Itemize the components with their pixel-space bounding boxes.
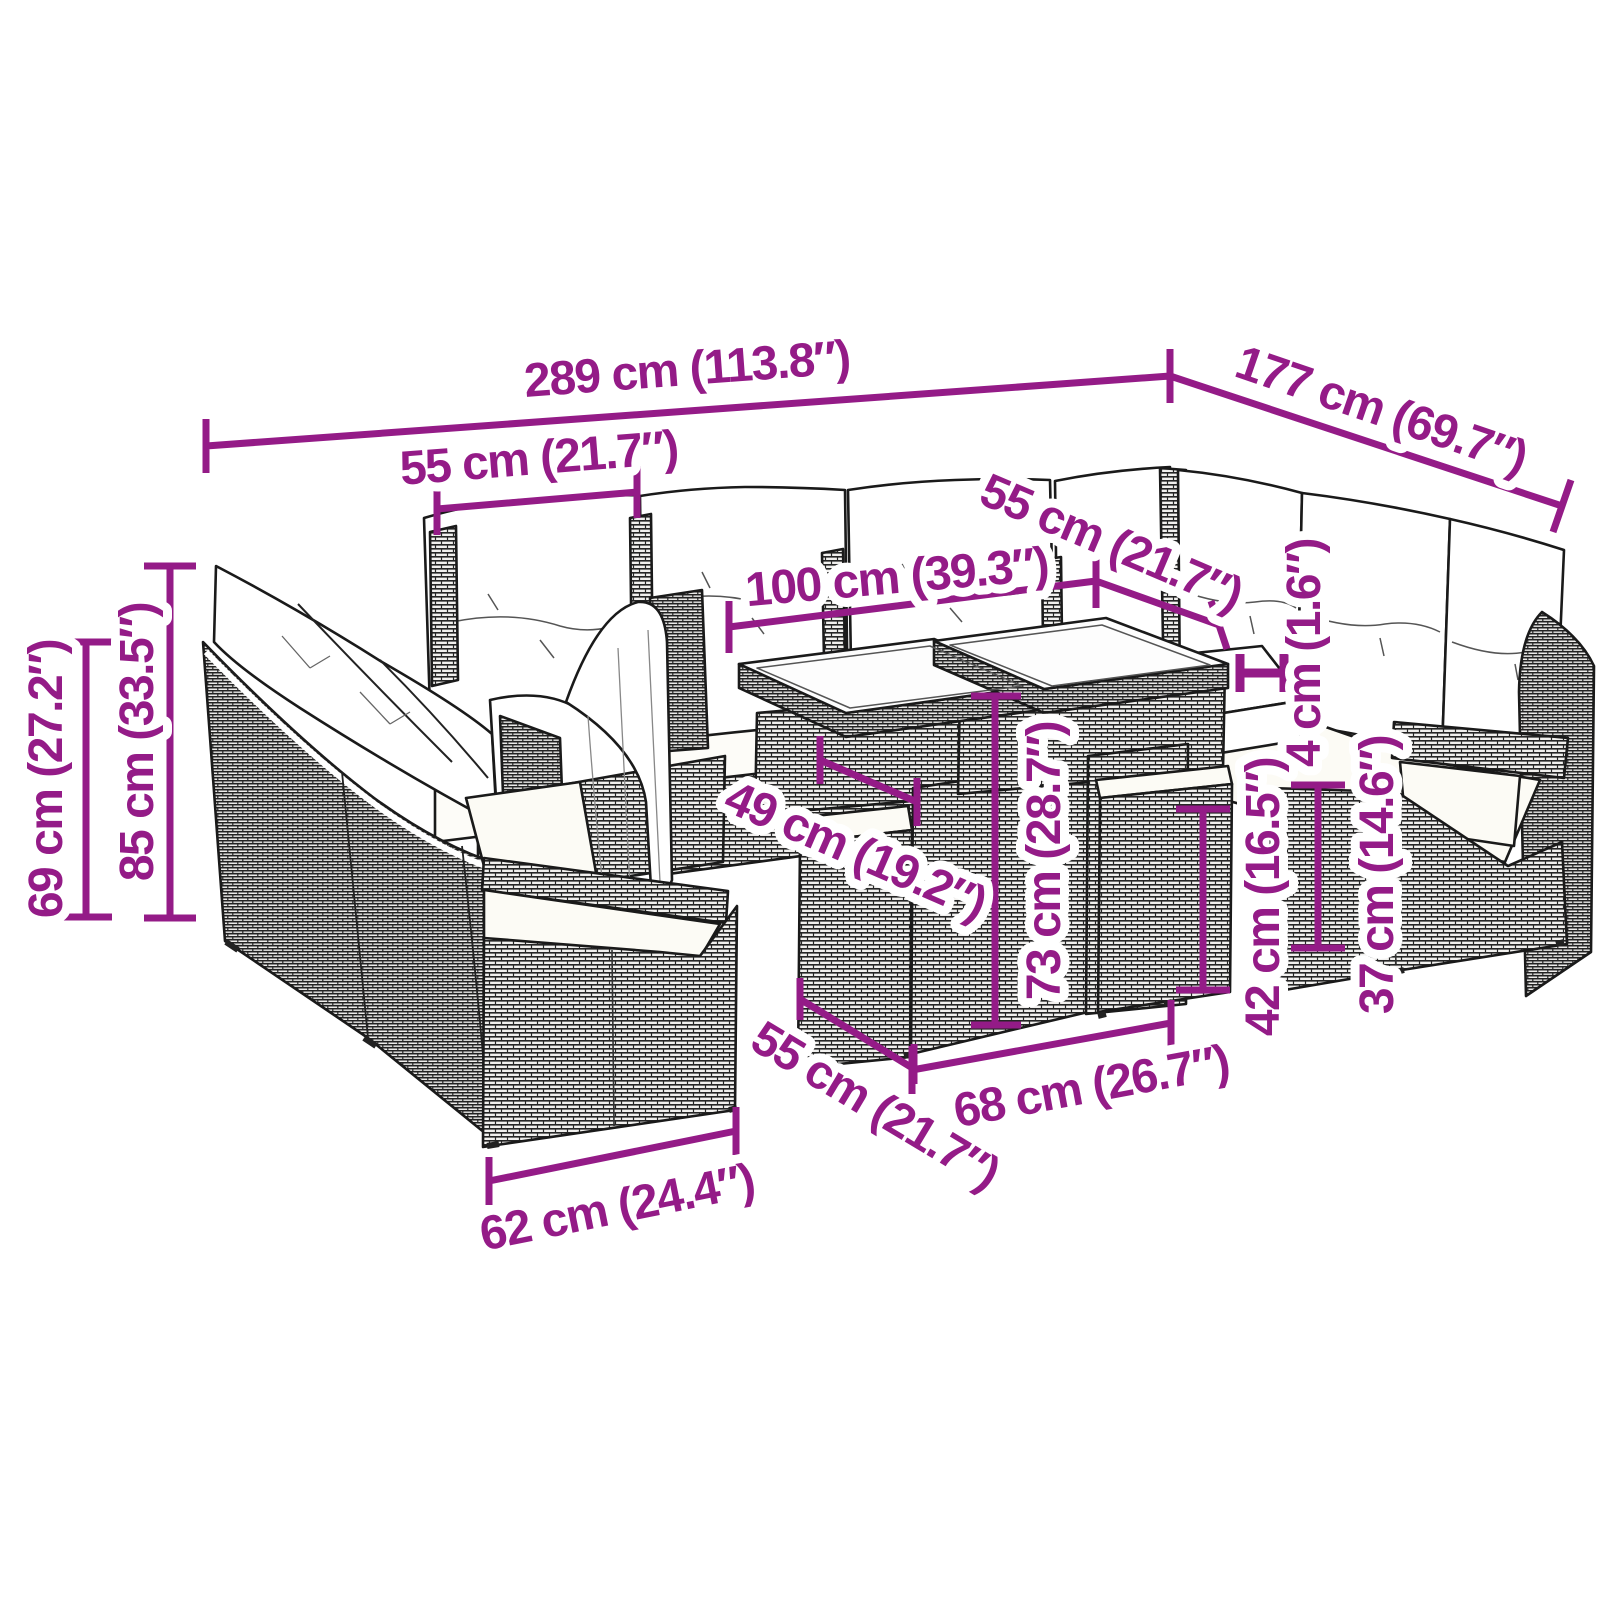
svg-text:73 cm (28.7″): 73 cm (28.7″) xyxy=(1018,722,1071,1000)
svg-text:42 cm (16.5″): 42 cm (16.5″) xyxy=(1237,758,1290,1036)
svg-text:37 cm (14.6″): 37 cm (14.6″) xyxy=(1351,736,1404,1014)
svg-text:85 cm (33.5″): 85 cm (33.5″) xyxy=(111,603,164,881)
svg-text:4 cm (1.6″): 4 cm (1.6″) xyxy=(1278,539,1331,767)
svg-text:69 cm (27.2″): 69 cm (27.2″) xyxy=(20,640,73,918)
